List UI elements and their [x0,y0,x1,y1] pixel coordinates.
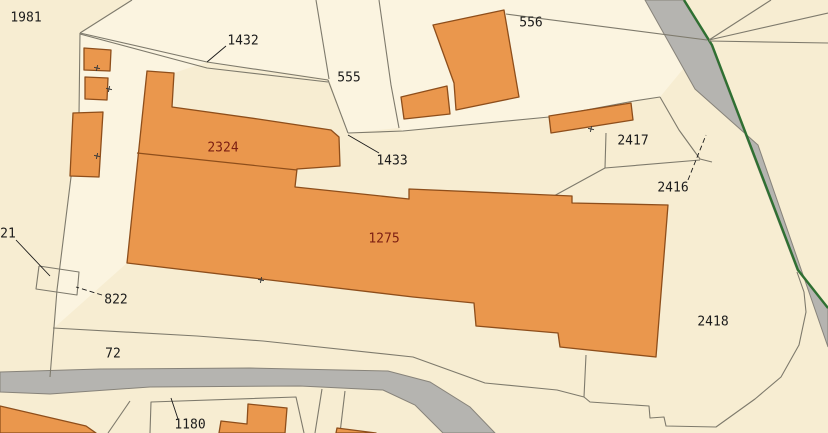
building-rect-c [70,112,103,177]
parcel-label-2416: 2416 [657,181,688,196]
building-label-1275: 1275 [368,232,399,247]
building-label-2324: 2324 [207,141,238,156]
parcel-label-822: 822 [104,293,127,308]
building-square-b [85,77,108,100]
parcel-label-2417: 2417 [617,134,648,149]
parcel-label-72: 72 [105,347,121,362]
parcel-label-21: 21 [0,227,16,242]
parcel-label-1180: 1180 [174,418,205,433]
parcel-label-1433: 1433 [376,154,407,169]
parcel-label-555: 555 [337,71,360,86]
parcel-label-2418: 2418 [697,315,728,330]
parcel-label-556: 556 [519,16,542,31]
cadastral-map-frame: 1981143255555614332417241624188227221118… [0,0,828,433]
parcel-label-1432: 1432 [227,34,258,49]
cadastral-map[interactable]: 1981143255555614332417241624188227221118… [0,0,828,433]
parcel-label-1981: 1981 [10,11,41,26]
